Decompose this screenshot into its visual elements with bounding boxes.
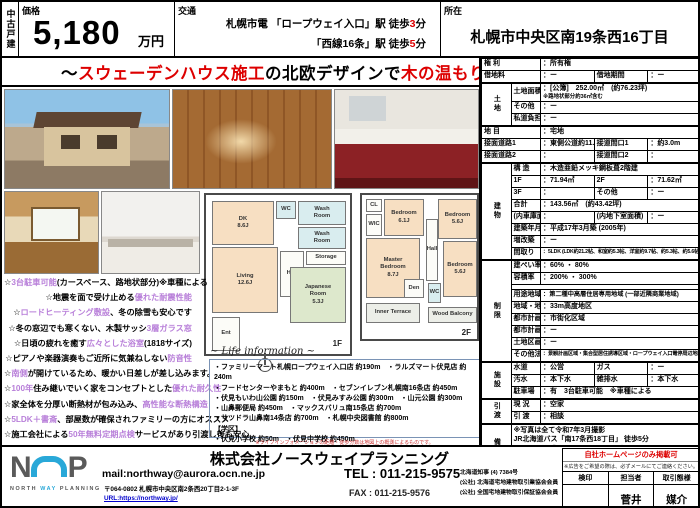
floorplan-1f: DK 8.6J WC Wash Room Wash Room Living 12…: [204, 193, 352, 356]
photo-interior-window-glass: [31, 207, 80, 242]
photo-living-wood: [172, 89, 332, 189]
room-washroom-1: Wash Room: [298, 201, 346, 225]
life-info-line: ・山鼻郵便局 約450m ・マックスバリュ南15条店 約700m: [214, 404, 475, 414]
spec-group-label: 施設: [482, 362, 512, 399]
photo-exterior-roof: [33, 112, 141, 128]
feature-line: ☆ロードヒーティング敷設、冬の除雪も安心です: [4, 305, 192, 320]
spec-value: 約3.0m: [648, 138, 700, 150]
spec-label: 2F: [594, 175, 648, 187]
room-wood-balcony: Wood Balcony: [428, 307, 477, 323]
property-type-label: 中古戸建: [6, 9, 15, 49]
life-info-line: ・フードセンターやまもと 約400m ・セブンイレブン札幌南16条店 約450m: [214, 384, 475, 394]
stamp-col-type: 取引態様: [654, 472, 699, 485]
location-cell: 所在 札幌市中央区南19条西16丁目: [441, 2, 698, 56]
floorplan-2f: CL WIC Bedroom 6.1J Bedroom 5.6J Hall Ma…: [360, 193, 479, 341]
room-living: Living 12.6J: [212, 247, 278, 313]
spec-table: 権 利所有権借地料ー借地期間ー土地土地面積[公簿] 252.00㎡ (約76.2…: [479, 58, 700, 445]
spec-label: 雑排水: [594, 374, 648, 386]
spec-value: 5LDK (LDK約21.2帖、和室約5.3帖、洋室約9.7帖、約5.3帖、約5…: [541, 247, 700, 260]
spec-value: 71.94㎡: [541, 175, 595, 187]
logo-letter-p: P: [68, 451, 86, 484]
room-japanese: Japanese Room 5.3J: [290, 267, 346, 323]
life-info-box: ・ファミリーマート札幌ロープウェイ入口店 約190m ・ラルズマート伏見店 約2…: [209, 359, 480, 438]
room-hall-2f: Hall: [426, 219, 438, 281]
license-assoc-1: (公社) 北海道宅地建物取引業協会会員: [460, 478, 560, 488]
spec-value: ー: [648, 71, 700, 84]
spec-label: 合計: [511, 199, 541, 211]
spec-value: 第二種中高層住居専用地域 (一部近隣商業地域): [541, 289, 700, 301]
spec-label: 地域・地区: [511, 301, 541, 313]
spec-group-label: 引渡: [482, 399, 512, 424]
feature-line: ☆100年住み継いでいく家をコンセプトとした優れた耐久性: [4, 381, 192, 396]
spec-label: 汚水: [511, 374, 541, 386]
spec-value: [541, 150, 595, 163]
spec-value: [541, 187, 595, 199]
price-cell: 価格 5,180 万円: [19, 2, 175, 56]
company-url-link[interactable]: URL:https://northway.jp/: [104, 495, 304, 502]
spec-label: その他: [511, 101, 541, 113]
spec-label: 用途地域: [511, 289, 541, 301]
photo-exterior-window: [61, 135, 81, 149]
photo-exterior-wall: [44, 127, 129, 166]
spec-value: 所有権: [541, 59, 700, 71]
spec-value: 平成17年3月築 (2005年): [541, 223, 700, 235]
spec-group-label: 土地: [482, 83, 512, 126]
feature-line: ☆冬の窓辺でも寒くない、木製サッシ3層ガラス窓: [4, 321, 192, 336]
spec-value: [公簿] 252.00㎡ (約76.23坪)※路地状部分約36㎡含む: [541, 83, 700, 101]
stamp-box: 自社ホームページのみ掲載可 ※広告をご希望の際は、必ずメールにてご連絡ください。…: [562, 448, 700, 508]
footer: NP NORTH WAY PLANNING 株式会社ノースウェイプランニング m…: [2, 445, 698, 508]
spec-value: 有 3台駐車可能 ※車種による: [541, 386, 700, 399]
spec-value: ー: [541, 71, 595, 84]
spec-label: 間取り: [511, 247, 541, 260]
room-washroom-2: Wash Room: [298, 227, 346, 249]
license-number: 北海道知事 (4) 7384号: [460, 468, 560, 478]
location-label: 所在: [444, 4, 462, 17]
spec-label: (内車庫面積): [511, 211, 541, 223]
spec-label: 接面道路1: [482, 138, 541, 150]
feature-line: ☆地震を面で受け止める優れた耐震性能: [4, 290, 192, 305]
photo-kitchen-white: [101, 191, 200, 274]
property-type: 中古戸建: [2, 2, 19, 56]
stamp-col-agent: 担当者: [608, 472, 653, 485]
room-wic: WIC: [366, 214, 382, 236]
spec-label: 3F: [511, 187, 541, 199]
stamp-type-value: 媒介: [654, 485, 699, 508]
photo-living-light: [205, 119, 278, 164]
spec-group-label: 建物: [482, 163, 512, 260]
spec-label: 駐車場: [511, 386, 541, 399]
spec-value: ー: [541, 235, 700, 247]
flyer-page: 中古戸建 価格 5,180 万円 交通 札幌市電 「ロープウェイ入口」駅 徒歩3…: [0, 0, 700, 508]
spec-value: 木造亜鉛メッキ鋼板葺2階建: [541, 163, 700, 176]
room-dk: DK 8.6J: [212, 201, 274, 245]
price-value: 5,180: [33, 14, 121, 52]
photo-interior-window: [4, 191, 99, 274]
feature-line: ☆5LDK＋書斎、部屋数が確保されファミリーの方にオススメ: [4, 412, 192, 427]
logo-arc-icon: [31, 456, 67, 477]
spec-value: 東側公道約11.0m: [541, 138, 595, 150]
spec-label: ガス: [594, 362, 648, 375]
spec-value: ー: [541, 325, 700, 337]
access-lines: 札幌市電 「ロープウェイ入口」駅 徒歩3分 「西線16条」駅 徒歩5分: [226, 15, 426, 55]
spec-value: 市街化区域: [541, 313, 700, 325]
company-mail[interactable]: mail:northway@aurora.ocn.ne.jp: [102, 468, 322, 480]
spec-value: ー: [648, 187, 700, 199]
spec-label: 1F: [511, 175, 541, 187]
spec-label: その他: [594, 187, 648, 199]
ad-notice: 自社ホームページのみ掲載可: [563, 449, 699, 462]
location-value: 札幌市中央区南19条西16丁目: [441, 26, 698, 47]
spec-label: 水道: [511, 362, 541, 375]
photo-exterior: [4, 89, 170, 189]
room-bedroom-1: Bedroom 6.1J: [384, 199, 424, 236]
room-bedroom-3: Bedroom 5.6J: [443, 241, 477, 297]
spec-table-body: 権 利所有権借地料ー借地期間ー土地土地面積[公簿] 252.00㎡ (約76.2…: [482, 59, 700, 446]
spec-label: 接面道路2: [482, 150, 541, 163]
company-fax: FAX : 011-215-9576: [349, 488, 459, 498]
spec-label: 地 目: [482, 126, 541, 139]
spec-label: 増改築: [511, 235, 541, 247]
spec-value: 143.56㎡ (約43.42坪): [541, 199, 700, 211]
stamp-agent-value: 菅井: [608, 485, 653, 508]
spec-label: 権 利: [482, 59, 541, 71]
spec-value: 相談: [541, 411, 700, 424]
spec-label: 接道間口1: [594, 138, 648, 150]
spec-group-label: 制限: [482, 260, 512, 362]
spec-label: その他法令上の制限: [511, 349, 541, 362]
spec-value: 空家: [541, 399, 700, 412]
spec-label: 引 渡: [511, 411, 541, 424]
feature-line: ☆施工会社による50年無料定期点検サービスがあり引渡し後も安心: [4, 427, 192, 442]
spec-value: ー: [541, 113, 700, 126]
spec-label: 土地区画整理: [511, 337, 541, 349]
life-info-line: ・伏見もいわ山公園 約150m ・伏見みすみ公園 約300m ・山元公園 約30…: [214, 394, 475, 404]
company-tel: TEL : 011-215-9575: [344, 466, 464, 481]
access-line-1: 札幌市電 「ロープウェイ入口」駅 徒歩3分: [226, 15, 426, 35]
access-label: 交通: [178, 4, 196, 17]
ad-note: ※広告をご希望の際は、必ずメールにてご連絡ください。: [563, 462, 699, 472]
spec-value: ー: [541, 101, 700, 113]
spec-value: 33m高度地区: [541, 301, 700, 313]
company-address: 〒064-0802 札幌市中央区南2条西20丁目2-1-3F: [104, 484, 304, 493]
spec-value: ー: [541, 337, 700, 349]
header: 中古戸建 価格 5,180 万円 交通 札幌市電 「ロープウェイ入口」駅 徒歩3…: [2, 2, 698, 58]
spec-value: 景観計画区域・集合型居住誘導区域・ロープウェイ入口電停周辺地区: [541, 349, 700, 362]
logo-text: NORTH WAY PLANNING: [10, 486, 110, 492]
spec-label: 構 造: [511, 163, 541, 176]
room-bedroom-2: Bedroom 5.6J: [438, 199, 477, 239]
spec-label: 都市計画道路: [511, 325, 541, 337]
stamp-seal-value: [563, 485, 608, 508]
photo-kitchen-red: [334, 89, 479, 189]
feature-list: ☆3台駐車可能(カースペース、路地状部分)※車種による☆地震を面で受け止める優れ…: [4, 275, 192, 442]
spec-label: 建築年月: [511, 223, 541, 235]
life-info-line: ・サツドラ山鼻南14条店 約700m ・札幌中央図書館 約800m: [214, 414, 475, 424]
spec-group-label: 備考: [482, 424, 512, 445]
access-cell: 交通 札幌市電 「ロープウェイ入口」駅 徒歩3分 「西線16条」駅 徒歩5分: [175, 2, 441, 56]
feature-line: ☆日頃の疲れを癒す広々とした浴室(1818サイズ): [4, 336, 192, 351]
license-assoc-2: (公社) 全国宅地建物取引保証協会会員: [460, 488, 560, 498]
room-inner-terrace: Inner Terrace: [366, 303, 420, 323]
life-info-line: ・ファミリーマート札幌ロープウェイ入口店 約190m ・ラルズマート伏見店 約2…: [214, 363, 475, 384]
spec-value: ー: [648, 362, 700, 375]
spec-label: 都市計画区域: [511, 313, 541, 325]
room-wc-1f: WC: [276, 201, 296, 219]
spec-label: 接道間口2: [594, 150, 648, 163]
license-info: 北海道知事 (4) 7384号 (公社) 北海道宅地建物取引業協会会員 (公社)…: [460, 468, 560, 498]
spec-value: 本下水: [648, 374, 700, 386]
stamp-col-seal: 検印: [563, 472, 608, 485]
life-info-title: ~ Life information ~: [210, 346, 480, 357]
feature-line: ☆南側が開けているため、暖かい日差しが差し込みます。: [4, 366, 192, 381]
spec-label: 建ぺい率: [511, 260, 541, 273]
feature-line: ☆家全体を分厚い断熱材が包み込み、高性能な断熱構造: [4, 397, 192, 412]
room-wc-2f: WC: [428, 283, 441, 303]
stamp-table: 検印 担当者 取引態様 菅井 媒介: [563, 472, 699, 508]
room-den: Den: [404, 279, 424, 298]
price-unit: 万円: [138, 31, 164, 50]
spec-value: 公営: [541, 362, 595, 375]
spec-value: 200% ・ 300%: [541, 272, 700, 284]
spec-label: 容積率: [511, 272, 541, 284]
feature-line: ☆ピアノや楽器演奏もご近所に気兼ねしない防音性: [4, 351, 192, 366]
room-storage: Storage: [306, 251, 346, 265]
spec-value: 本下水: [541, 374, 595, 386]
spec-value: 60% ・ 80%: [541, 260, 700, 273]
floorplan-2f-label: 2F: [462, 328, 471, 337]
spec-value: ー: [648, 211, 700, 223]
spec-value: [541, 211, 595, 223]
room-closet: CL: [366, 199, 382, 212]
logo-mark: NP: [10, 453, 110, 483]
feature-line: ☆3台駐車可能(カースペース、路地状部分)※車種による: [4, 275, 192, 290]
spec-value: 71.62㎡: [648, 175, 700, 187]
photo-exterior-window2: [97, 135, 117, 149]
spec-label: 借地期間: [594, 71, 648, 84]
spec-value: [648, 150, 700, 163]
access-line-2: 「西線16条」駅 徒歩5分: [226, 35, 426, 55]
spec-value: 宅地: [541, 126, 700, 139]
spec-label: (内地下室面積): [594, 211, 648, 223]
spec-label: 借地料: [482, 71, 541, 84]
spec-label: 土地面積: [511, 83, 541, 101]
photo-kitchen-hood: [349, 96, 386, 121]
life-info-line: 【学区】: [214, 425, 475, 435]
spec-label: 私道負担面積: [511, 113, 541, 126]
logo-letter-n: N: [10, 451, 30, 484]
photo-kitchen-counter: [108, 239, 193, 247]
company-logo: NP NORTH WAY PLANNING: [10, 453, 110, 507]
spec-label: 現 況: [511, 399, 541, 412]
